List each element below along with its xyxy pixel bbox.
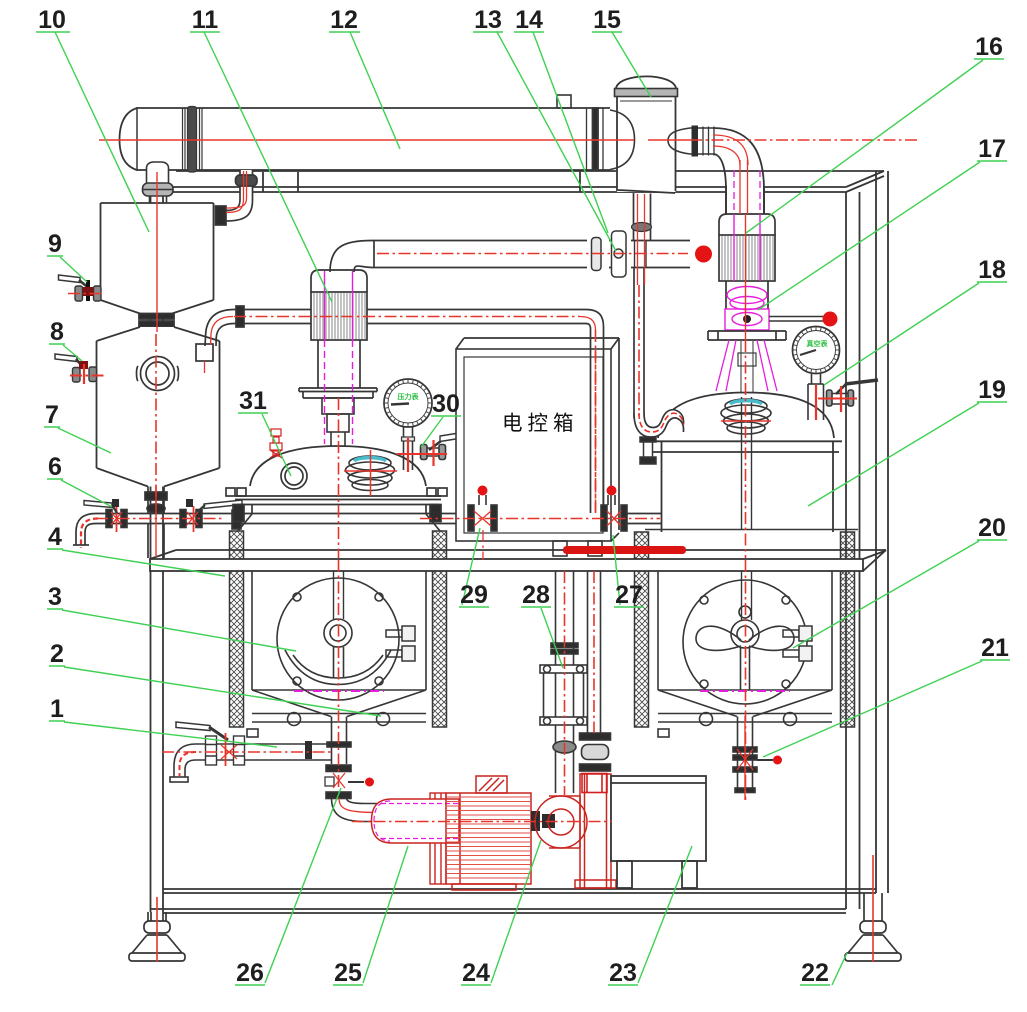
svg-text:28: 28 [522,581,550,609]
svg-text:10: 10 [38,6,66,34]
svg-text:20: 20 [978,514,1006,542]
svg-text:3: 3 [48,583,62,611]
svg-text:15: 15 [593,6,621,34]
svg-text:24: 24 [462,959,490,987]
svg-text:真空表: 真空表 [807,339,829,348]
svg-text:26: 26 [236,959,264,987]
svg-text:1: 1 [50,695,64,723]
svg-text:14: 14 [515,6,543,34]
svg-text:30: 30 [432,390,460,418]
svg-text:18: 18 [978,256,1006,284]
svg-text:23: 23 [609,959,637,987]
svg-text:27: 27 [615,581,643,609]
svg-text:压力表: 压力表 [398,392,420,401]
svg-text:2: 2 [50,640,64,668]
svg-text:6: 6 [48,453,62,481]
svg-text:19: 19 [978,376,1006,404]
svg-text:11: 11 [192,6,219,34]
svg-text:12: 12 [330,6,358,34]
svg-text:9: 9 [48,230,62,258]
svg-text:17: 17 [978,135,1006,163]
svg-text:29: 29 [460,581,488,609]
svg-text:21: 21 [981,634,1009,662]
svg-text:22: 22 [801,959,829,987]
svg-text:25: 25 [334,959,362,987]
svg-text:16: 16 [975,33,1003,61]
svg-text:电控箱: 电控箱 [502,412,579,435]
svg-text:7: 7 [45,401,59,429]
svg-text:31: 31 [239,387,267,415]
svg-text:13: 13 [474,6,502,34]
svg-text:8: 8 [50,318,64,346]
svg-text:4: 4 [48,523,62,551]
